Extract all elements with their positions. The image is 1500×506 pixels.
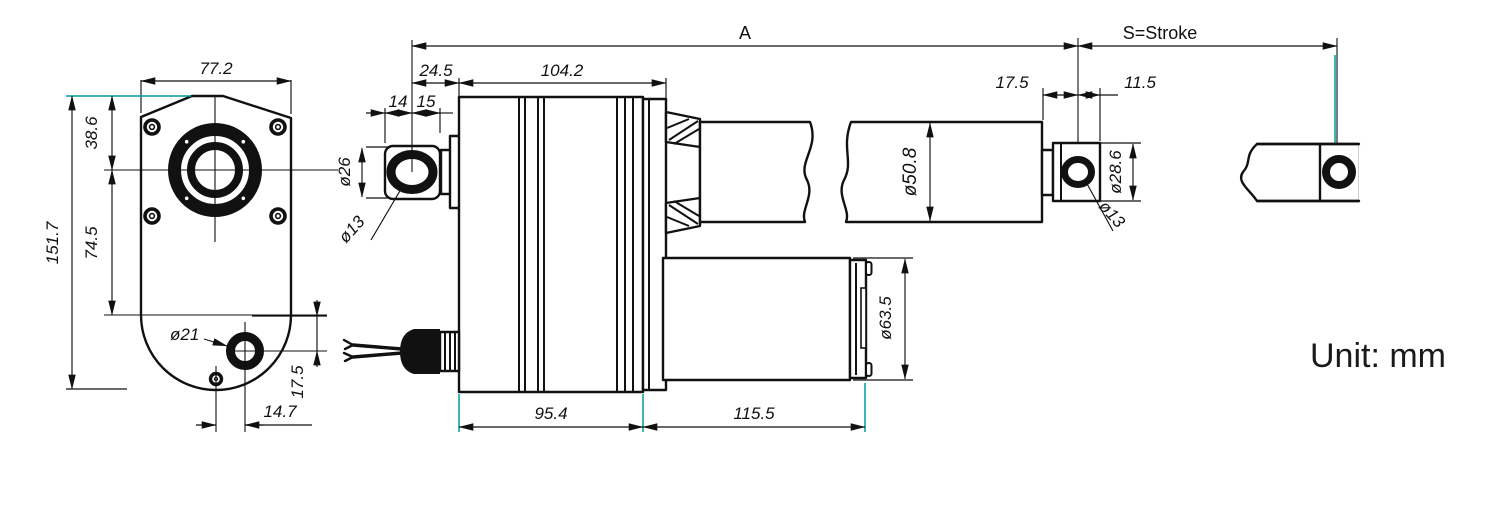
- dim-rod-tip: 11.5: [1124, 73, 1156, 92]
- tube-clamp: [666, 112, 700, 233]
- side-view: ø50.8: [335, 40, 1042, 432]
- dim-housing-length: 104.2: [541, 61, 584, 80]
- dim-tube-dia: ø50.8: [900, 147, 921, 196]
- front-view: 77.2 151.7 38.6 74.5 17.5 14.7 ø21: [43, 59, 338, 432]
- dim-rod-end-hole: ø13: [1095, 197, 1129, 232]
- dim-front-width: 77.2: [199, 59, 233, 78]
- extended-rod-hole: [1326, 159, 1352, 185]
- gland-body: [400, 329, 440, 374]
- dim-overall-length: A: [739, 23, 751, 43]
- cable-gland: [400, 329, 459, 374]
- drawing-canvas: 77.2 151.7 38.6 74.5 17.5 14.7 ø21: [0, 0, 1500, 506]
- dim-gearbox-length: 95.4: [534, 404, 567, 423]
- dim-motor-length: 115.5: [733, 404, 775, 423]
- dim-lower-hole-h: 14.7: [263, 402, 297, 421]
- dim-rear-pivot-to-body: 24.5: [418, 61, 453, 80]
- dim-rod-end-od: ø28.6: [1106, 150, 1125, 194]
- extended-rod-detail: [1241, 144, 1363, 201]
- dim-center-from-top: 38.6: [82, 116, 101, 150]
- dim-clevis-front: 14: [389, 92, 408, 111]
- dim-lower-hole-dia: ø21: [170, 325, 199, 344]
- dim-motor-dia: ø63.5: [876, 296, 895, 340]
- rod-end-hole: [1065, 160, 1092, 185]
- wires: [344, 340, 402, 361]
- motor-housing: [663, 258, 872, 380]
- dim-front-height: 151.7: [43, 221, 62, 264]
- unit-label: Unit: mm: [1310, 337, 1446, 375]
- edge-mask: [1359, 140, 1367, 206]
- dim-clevis-rear: 15: [417, 92, 436, 111]
- dim-stroke: S=Stroke: [1123, 23, 1198, 43]
- dim-clevis-od: ø26: [335, 157, 354, 187]
- actuator-dimensional-drawing: 77.2 151.7 38.6 74.5 17.5 14.7 ø21: [0, 0, 1500, 506]
- dim-rod-shoulder: 17.5: [995, 73, 1029, 92]
- front-body-outline: [141, 96, 291, 390]
- dim-clevis-hole: ø13: [335, 212, 369, 247]
- dim-lower-hole-v: 17.5: [288, 365, 307, 399]
- dim-center-to-bottom: 74.5: [82, 226, 101, 260]
- outer-tube: [700, 122, 1042, 222]
- gearbox-housing: [459, 97, 643, 392]
